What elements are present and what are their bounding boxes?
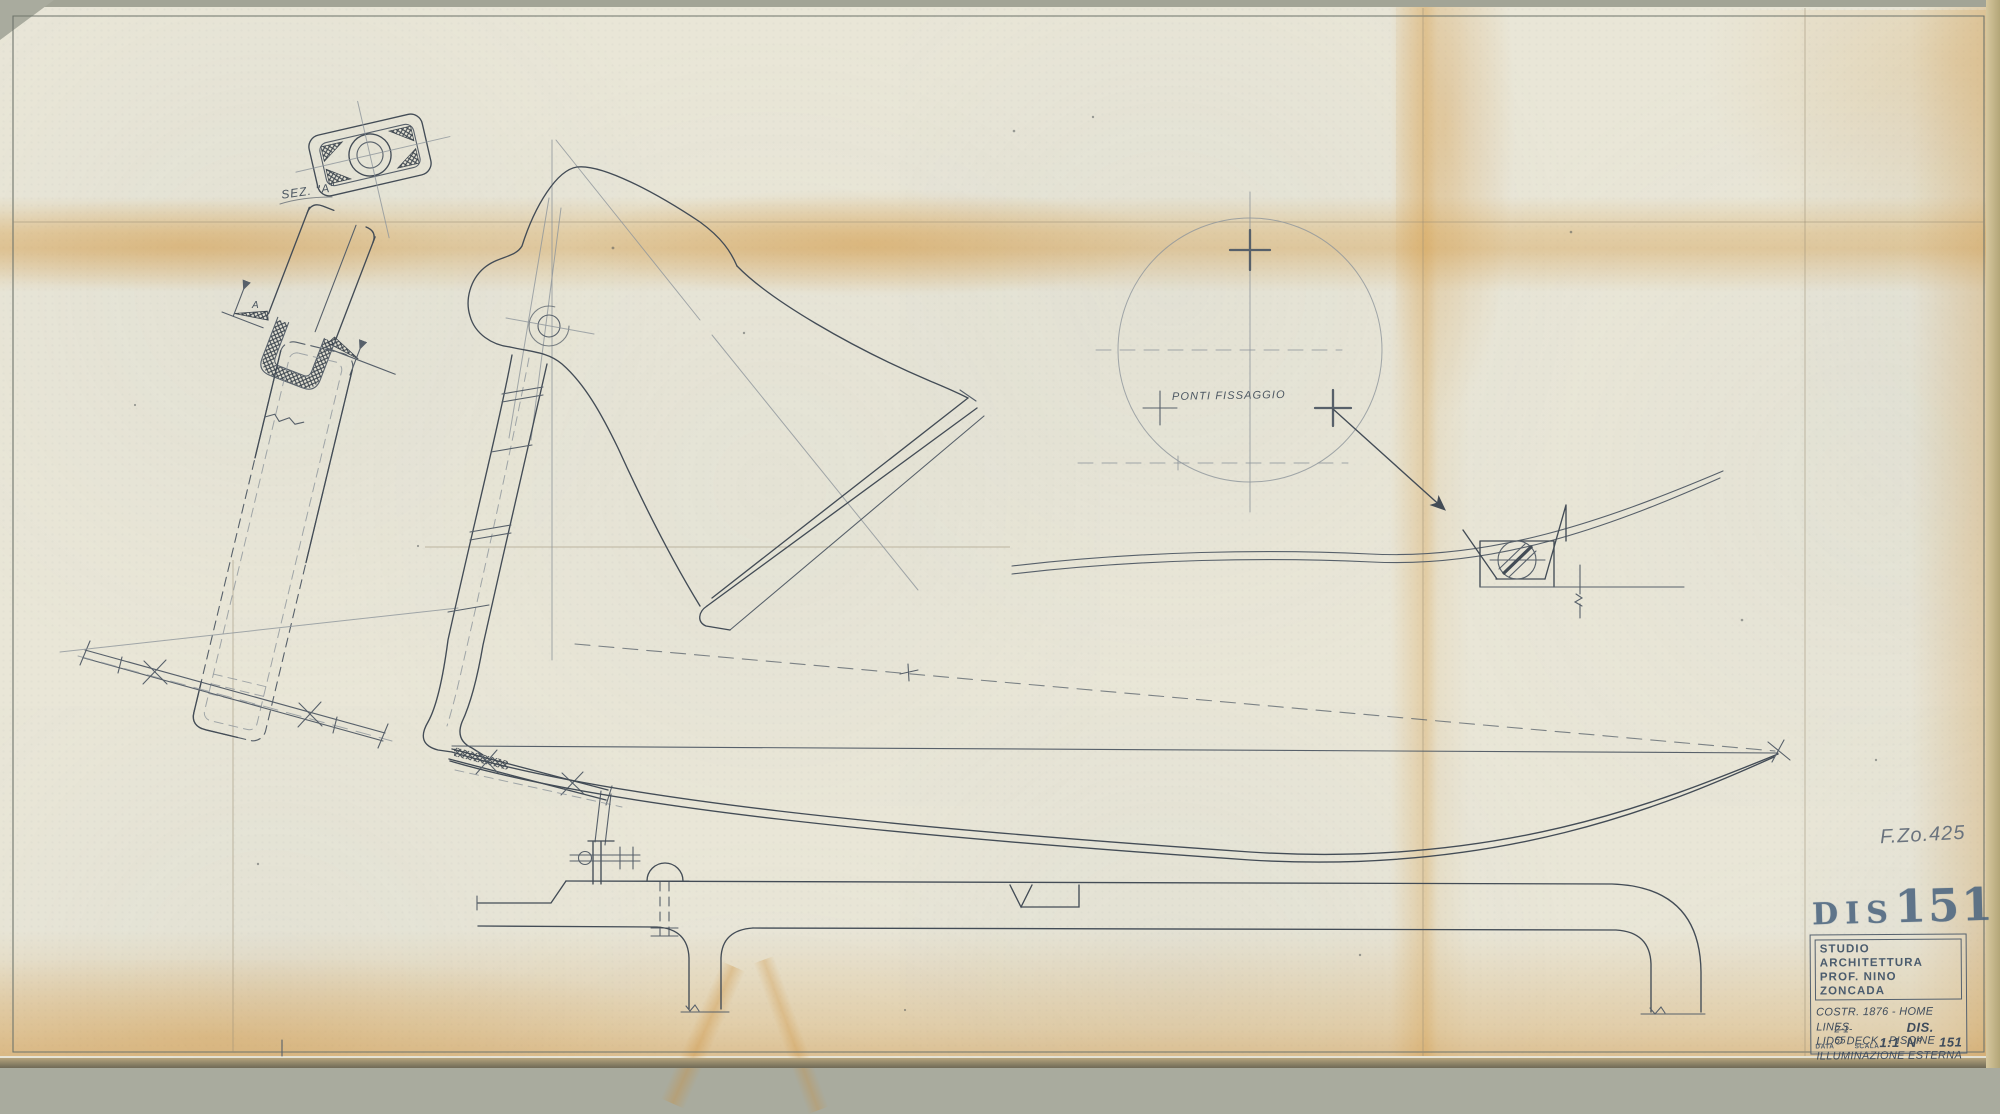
- title-block: STUDIO ARCHITETTURA PROF. NINO ZONCADA C…: [1810, 933, 1968, 1054]
- base-plinth-and-legs: [477, 881, 1705, 1014]
- lamp-post-socket-section: [191, 186, 443, 743]
- paper-flecks: [134, 116, 1877, 1011]
- lamp-fixture-elevation: [423, 140, 984, 938]
- drawing-number-stamp: DIS151: [1811, 878, 1995, 936]
- file-reference-note: F.Zo.425: [1879, 822, 1966, 849]
- deck-bench-profile: [450, 644, 1790, 862]
- deck-bracket-detail: [1012, 409, 1723, 618]
- fixing-points-plan-circle: [1078, 192, 1382, 512]
- section-a-plan-view: [280, 83, 469, 255]
- title-block-footer: DATA 2-1-65 SCALA 1:1 DIS. N° 151: [1815, 1019, 1962, 1050]
- stamp-prefix: DIS: [1812, 895, 1896, 932]
- fold-creases: [13, 8, 1984, 1056]
- stamp-number: 151: [1894, 878, 1995, 934]
- drawing-linework: [0, 0, 2000, 1068]
- title-block-studio: STUDIO ARCHITETTURA PROF. NINO ZONCADA: [1815, 938, 1962, 1000]
- mounting-rail: [60, 608, 458, 748]
- section-arrow-label: A: [252, 300, 259, 311]
- date-label: DATA: [1815, 1043, 1834, 1050]
- sheet-border: [13, 16, 1984, 1056]
- architect-name: PROF. NINO ZONCADA: [1820, 970, 1958, 999]
- studio-name: STUDIO ARCHITETTURA: [1820, 942, 1958, 971]
- scale-label: SCALA: [1855, 1043, 1880, 1050]
- scale-value: 1:1: [1879, 1035, 1899, 1050]
- sheet-number-value: 151: [1939, 1034, 1962, 1049]
- fixing-points-label: PONTI FISSAGGIO: [1172, 389, 1286, 403]
- sheet-number-label: DIS. N°: [1907, 1020, 1937, 1050]
- date-value: 2-1-65: [1834, 1024, 1852, 1046]
